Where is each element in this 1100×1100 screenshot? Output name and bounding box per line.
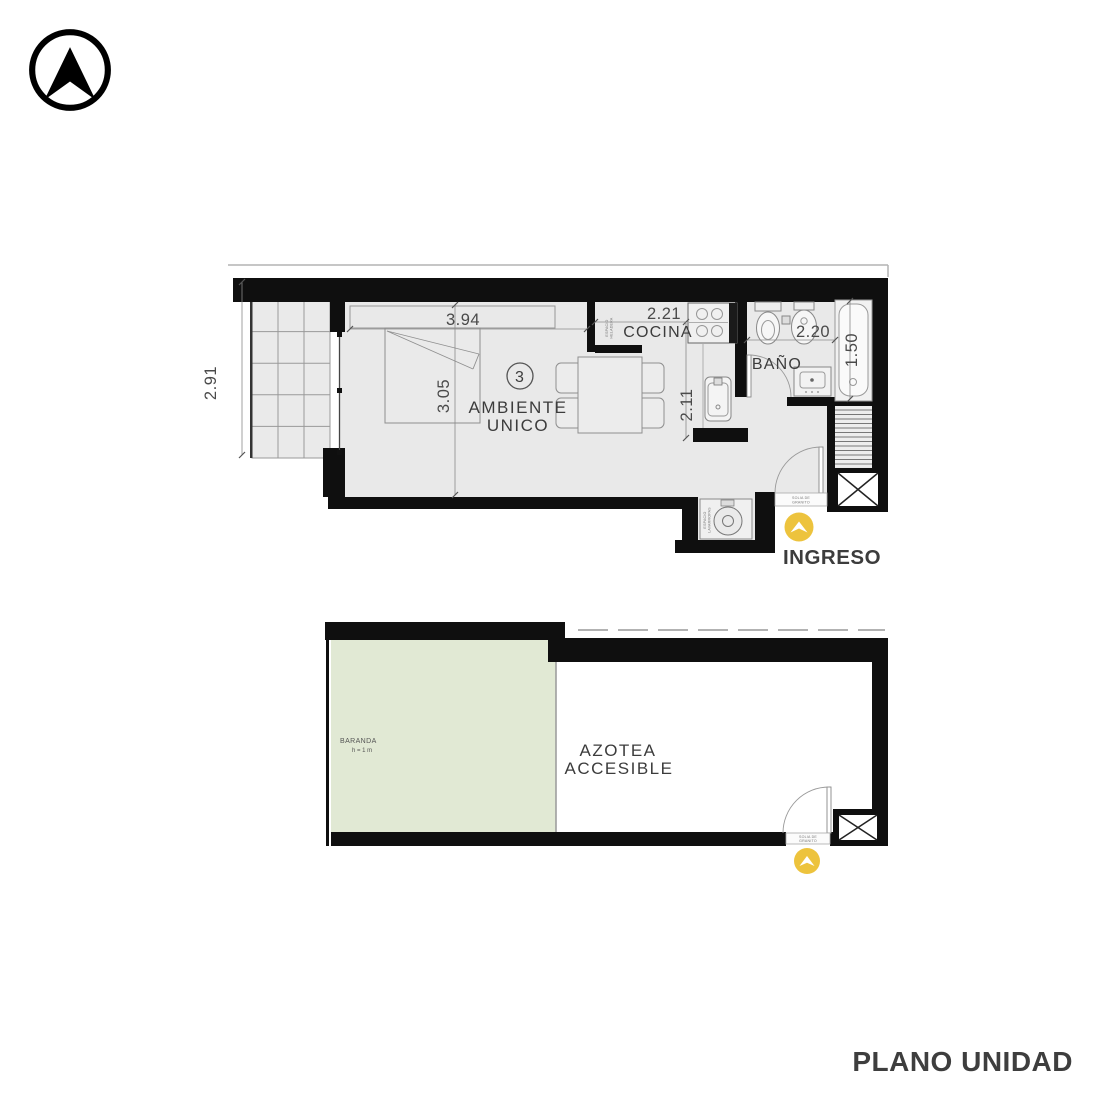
label-bathroom: BAÑO	[752, 353, 802, 373]
dim-kitchen-depth: 2.11	[678, 389, 696, 422]
upper-floor-plan: SOLIA DE GRANITO ESPACIO LAVARROPAS ESPA…	[200, 255, 895, 570]
grate-area	[835, 406, 872, 467]
label-main-room-1: AMBIENTE	[469, 398, 568, 417]
fridge-space-label: ESPACIO HELADERA	[605, 317, 614, 338]
svg-text:GRANITO: GRANITO	[792, 501, 810, 505]
washing-machine: ESPACIO LAVARROPAS	[700, 499, 752, 539]
paper-holder	[782, 316, 790, 324]
entry-threshold: SOLIA DE GRANITO	[775, 493, 827, 506]
dim-room-depth: 3.05	[435, 379, 453, 413]
lower-floor-plan: SOLIA DE GRANITO BARANDA h = 1 m AZOTEA …	[300, 600, 910, 890]
label-railing-1: BARANDA	[340, 738, 377, 745]
label-railing-2: h = 1 m	[352, 748, 372, 754]
entrance-marker-icon	[785, 513, 814, 542]
svg-text:LAVARROPAS: LAVARROPAS	[708, 507, 712, 533]
stove	[688, 303, 737, 343]
roof-air-shaft	[833, 809, 888, 846]
entrance-label: INGRESO	[783, 546, 881, 569]
svg-text:GRANITO: GRANITO	[799, 839, 817, 843]
roof-threshold: SOLIA DE GRANITO	[786, 833, 830, 844]
dim-room-width: 3.94	[446, 311, 480, 329]
label-roof-2: ACCESIBLE	[565, 759, 674, 778]
roof-door	[783, 787, 831, 833]
north-arrow-icon	[26, 26, 114, 114]
label-main-room-2: UNICO	[487, 416, 549, 435]
label-kitchen: COCINA	[623, 324, 692, 341]
dim-kitchen-width: 2.21	[647, 305, 681, 323]
svg-text:HELADERA: HELADERA	[610, 317, 614, 338]
floor-plan-page: { "title": { "label": "PLANO UNIDAD" }, …	[0, 0, 1100, 1100]
svg-text:3: 3	[515, 369, 525, 386]
dim-bathroom-width: 2.20	[796, 323, 830, 341]
dim-bathroom-depth: 1.50	[843, 333, 861, 367]
svg-text:SOLIA DE: SOLIA DE	[792, 496, 810, 500]
dim-balcony-depth: 2.91	[202, 366, 220, 400]
toilet	[755, 302, 781, 344]
kitchen-sink	[705, 377, 731, 421]
svg-text:ESPACIO: ESPACIO	[703, 511, 707, 528]
roof-entrance-marker-icon	[794, 848, 820, 874]
air-shaft	[833, 468, 888, 512]
balcony	[250, 300, 330, 458]
label-roof-1: AZOTEA	[579, 741, 656, 760]
page-title: PLANO UNIDAD	[852, 1046, 1073, 1078]
